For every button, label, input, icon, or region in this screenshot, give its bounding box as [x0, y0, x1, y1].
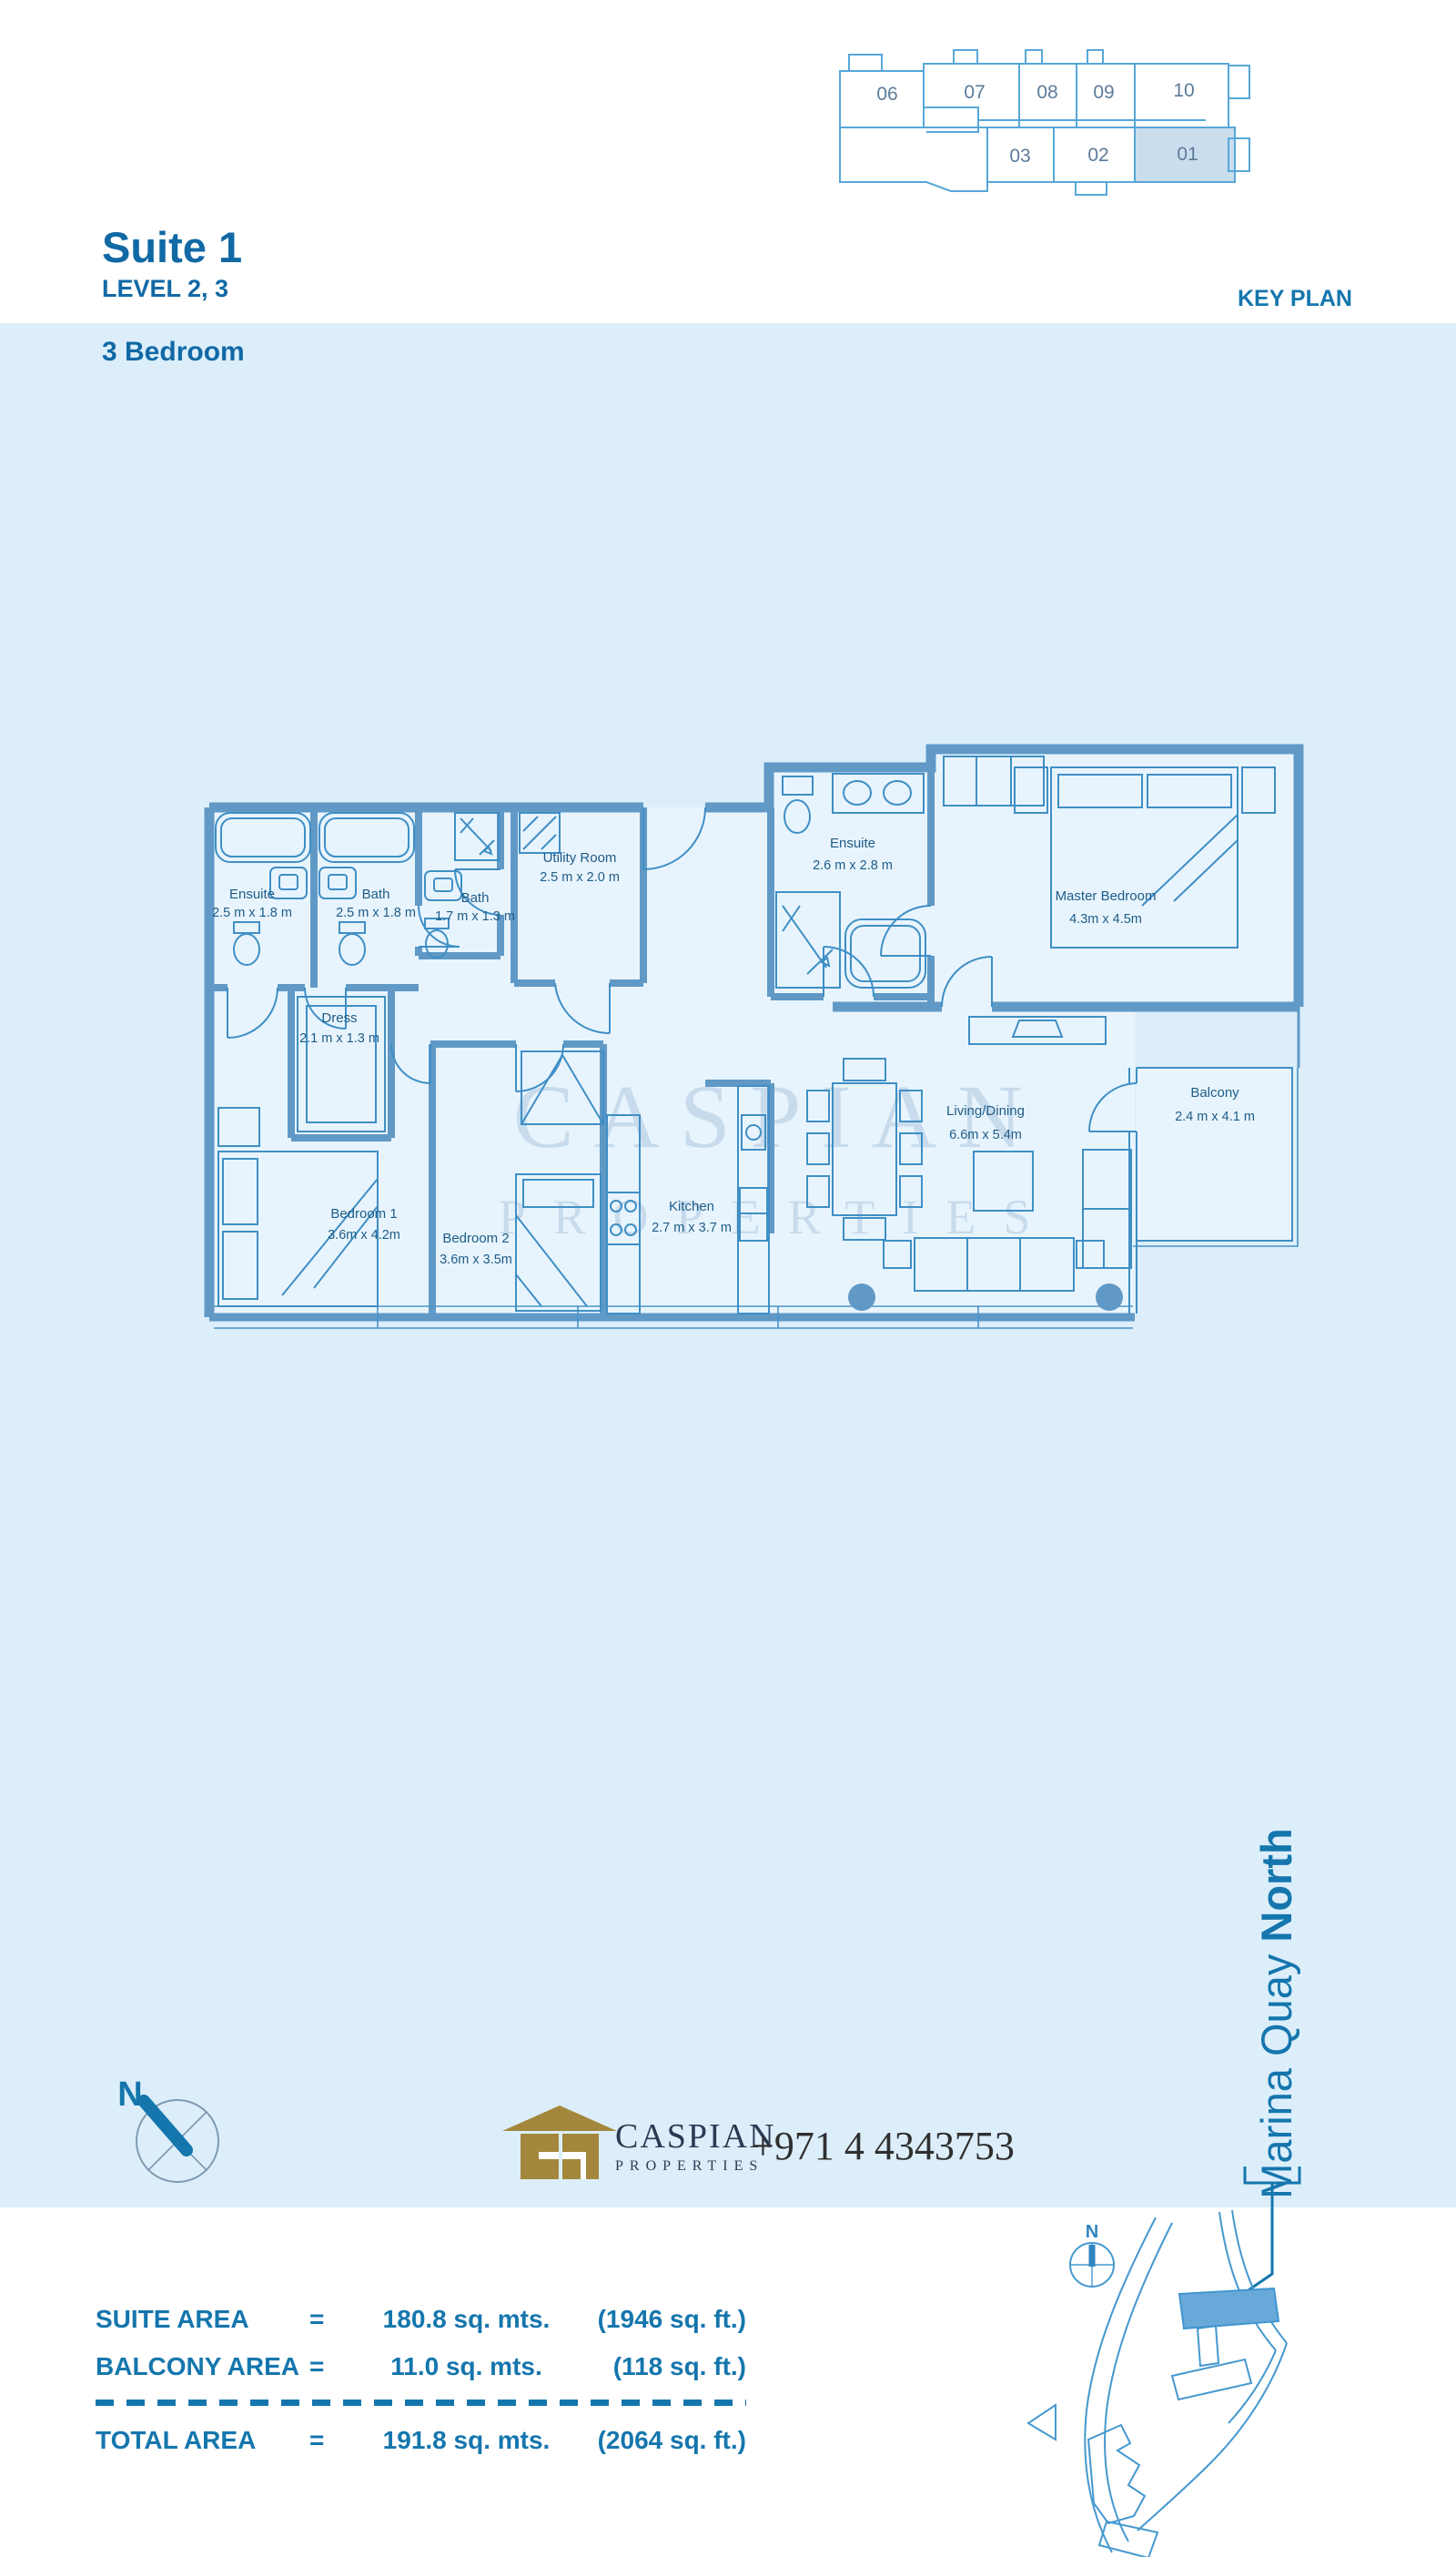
room-bedroom2-dims: 3.6m x 3.5m [440, 1253, 512, 1267]
room-bedroom1-dims: 3.6m x 4.2m [328, 1228, 400, 1243]
unit-06: 06 [876, 84, 897, 105]
room-dress-name: Dress [321, 1010, 357, 1026]
balcony-area-label: BALCONY AREA [96, 2352, 309, 2381]
bedroom-type-label: 3 Bedroom [102, 339, 245, 366]
room-living-dims: 6.6m x 5.4m [949, 1128, 1022, 1142]
unit-09: 09 [1093, 82, 1114, 103]
page-title: Suite 1 [102, 226, 242, 269]
room-dress-dims: 2.1 m x 1.3 m [299, 1031, 379, 1046]
suite-area-label: SUITE AREA [96, 2305, 309, 2334]
level-subtitle: LEVEL 2, 3 [102, 277, 228, 301]
room-utility-dims: 2.5 m x 2.0 m [540, 870, 620, 885]
dashed-divider [96, 2400, 746, 2406]
room-ensuite1-name: Ensuite [229, 887, 275, 902]
map-compass-icon: N [1070, 2222, 1114, 2287]
key-plan-outline [840, 50, 1249, 195]
room-bath1-dims: 2.5 m x 1.8 m [336, 906, 416, 920]
compass-north-label: N [117, 2075, 142, 2114]
room-ensuite2-dims: 2.6 m x 2.8 m [813, 858, 893, 873]
location-map: N [1001, 2157, 1365, 2557]
room-utility-name: Utility Room [543, 850, 617, 866]
room-bath2-name: Bath [461, 890, 490, 906]
compass-icon: N [86, 2034, 287, 2217]
unit-10: 10 [1173, 80, 1194, 101]
map-highlighted-building [1179, 2288, 1279, 2329]
balcony-area-eq: = [309, 2352, 350, 2381]
room-master-dims: 4.3m x 4.5m [1069, 912, 1142, 927]
balcony-area-metric: 11.0 sq. mts. [350, 2352, 582, 2381]
room-bedroom1-name: Bedroom 1 [330, 1206, 397, 1222]
floor-plan-drawing: CASPIAN PROPERTIES [196, 724, 1306, 1352]
room-balcony-dims: 2.4 m x 4.1 m [1175, 1110, 1255, 1124]
balcony-area-row: BALCONY AREA = 11.0 sq. mts. (118 sq. ft… [96, 2352, 746, 2381]
suite-area-metric: 180.8 sq. mts. [350, 2305, 582, 2334]
room-kitchen-dims: 2.7 m x 3.7 m [652, 1221, 732, 1235]
room-bath1-name: Bath [362, 887, 390, 902]
suite-area-imperial: (1946 sq. ft.) [582, 2305, 746, 2334]
map-roads [1028, 2210, 1287, 2557]
unit-07: 07 [964, 82, 985, 103]
total-area-row: TOTAL AREA = 191.8 sq. mts. (2064 sq. ft… [96, 2426, 746, 2455]
room-ensuite1-dims: 2.5 m x 1.8 m [212, 906, 292, 920]
key-plan-diagram: 06 07 08 09 10 03 02 01 [814, 46, 1274, 196]
balcony-area-imperial: (118 sq. ft.) [582, 2352, 746, 2381]
total-area-imperial: (2064 sq. ft.) [582, 2426, 746, 2455]
room-kitchen-name: Kitchen [669, 1199, 714, 1214]
phone-number: +971 4 4343753 [752, 2126, 1015, 2166]
room-master-name: Master Bedroom [1056, 888, 1157, 904]
room-bedroom2-name: Bedroom 2 [442, 1231, 509, 1246]
unit-02: 02 [1087, 145, 1108, 166]
total-area-eq: = [309, 2426, 350, 2455]
room-balcony-name: Balcony [1190, 1085, 1239, 1101]
north-text: North [1255, 1828, 1298, 1942]
unit-03: 03 [1009, 146, 1030, 167]
total-area-label: TOTAL AREA [96, 2426, 309, 2455]
floor-plan-page: Suite 1 LEVEL 2, 3 KEY PLAN 3 Bedroom [0, 0, 1456, 2557]
suite-area-row: SUITE AREA = 180.8 sq. mts. (1946 sq. ft… [96, 2305, 746, 2334]
room-bath2-dims: 1.7 m x 1.3 m [435, 909, 515, 924]
room-living-name: Living/Dining [946, 1103, 1025, 1119]
marina-quay-north-label: Marina Quay North [1247, 1822, 1305, 2205]
unit-01: 01 [1177, 144, 1198, 165]
total-area-metric: 191.8 sq. mts. [350, 2426, 582, 2455]
suite-area-eq: = [309, 2305, 350, 2334]
room-ensuite2-name: Ensuite [830, 836, 875, 851]
caspian-logo-icon [502, 2103, 617, 2179]
area-summary-table: SUITE AREA = 180.8 sq. mts. (1946 sq. ft… [96, 2305, 746, 2473]
unit-08: 08 [1036, 82, 1057, 103]
key-plan-label: KEY PLAN [1238, 288, 1352, 310]
map-compass-north-label: N [1086, 2222, 1098, 2242]
